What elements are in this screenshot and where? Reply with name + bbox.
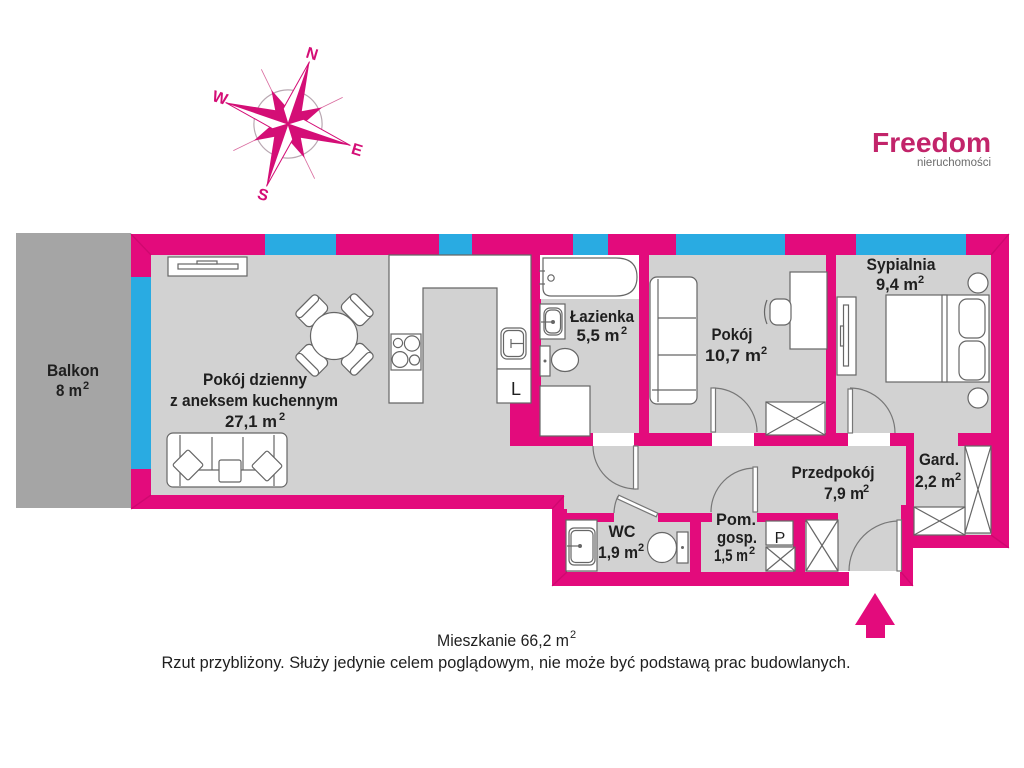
svg-text:Pom.: Pom. (716, 510, 756, 529)
svg-text:10,7 m: 10,7 m (705, 346, 761, 365)
svg-text:Mieszkanie 66,2 m: Mieszkanie 66,2 m (437, 631, 569, 650)
svg-text:2: 2 (761, 345, 767, 357)
svg-text:Przedpokój: Przedpokój (792, 463, 875, 482)
svg-text:S: S (255, 186, 270, 205)
svg-text:2: 2 (918, 274, 924, 286)
svg-text:8 m: 8 m (56, 381, 82, 400)
svg-text:W: W (210, 88, 230, 109)
svg-text:Balkon: Balkon (47, 361, 99, 380)
svg-text:2: 2 (83, 380, 89, 392)
svg-text:E: E (349, 141, 364, 160)
svg-text:9,4 m: 9,4 m (876, 275, 918, 294)
svg-text:7,9 m: 7,9 m (824, 484, 864, 503)
svg-text:2: 2 (570, 629, 576, 641)
svg-text:P: P (775, 530, 786, 547)
svg-text:Pokój: Pokój (712, 325, 753, 344)
svg-text:Rzut przybliżony. Służy jedyni: Rzut przybliżony. Służy jedynie celem po… (162, 653, 851, 672)
svg-text:Gard.: Gard. (919, 450, 959, 469)
svg-text:2: 2 (749, 545, 755, 557)
svg-text:WC: WC (609, 522, 636, 541)
svg-text:z aneksem kuchennym: z aneksem kuchennym (170, 391, 338, 410)
svg-text:Sypialnia: Sypialnia (867, 255, 937, 274)
svg-text:27,1 m: 27,1 m (225, 412, 277, 431)
svg-text:Freedom: Freedom (872, 127, 991, 158)
svg-text:1,9 m: 1,9 m (598, 543, 638, 562)
svg-text:2: 2 (279, 411, 285, 423)
svg-text:5,5 m: 5,5 m (577, 326, 620, 345)
svg-text:2: 2 (621, 325, 627, 337)
svg-text:N: N (304, 45, 320, 65)
svg-text:2: 2 (638, 542, 644, 554)
svg-text:L: L (511, 379, 521, 399)
svg-text:1,5 m: 1,5 m (714, 546, 748, 565)
svg-text:2: 2 (863, 483, 869, 495)
svg-text:nieruchomości: nieruchomości (917, 157, 991, 169)
svg-text:Pokój dzienny: Pokój dzienny (203, 370, 307, 389)
svg-text:Łazienka: Łazienka (570, 307, 634, 326)
svg-text:2: 2 (955, 471, 961, 483)
svg-text:2,2 m: 2,2 m (915, 472, 955, 491)
